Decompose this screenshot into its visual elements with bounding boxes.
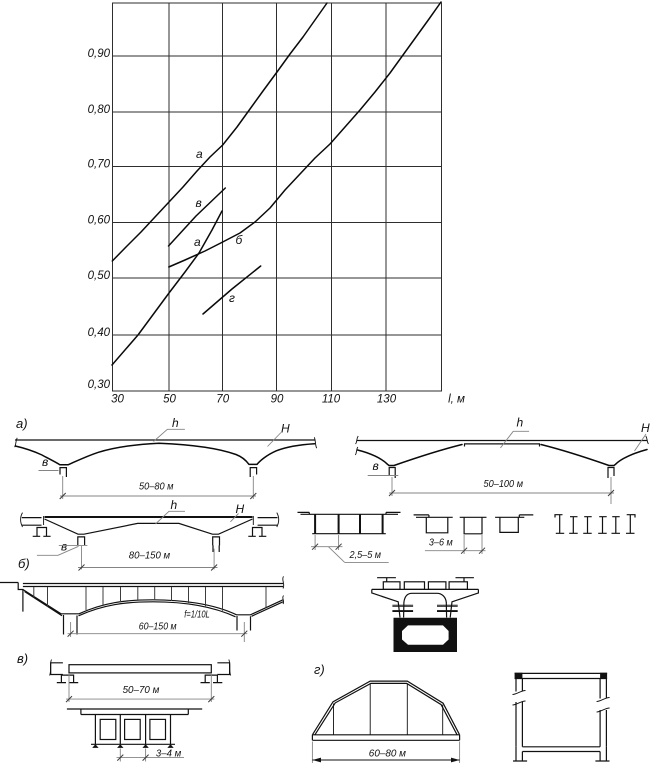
svg-text:90: 90 xyxy=(271,394,284,406)
svg-text:0,80: 0,80 xyxy=(88,104,111,116)
svg-text:110: 110 xyxy=(322,394,341,406)
svg-text:г: г xyxy=(229,291,235,305)
svg-text:50–70 м: 50–70 м xyxy=(123,685,160,696)
svg-text:h: h xyxy=(171,498,178,512)
svg-text:0,90: 0,90 xyxy=(88,48,111,60)
svg-text:30: 30 xyxy=(111,394,124,406)
svg-text:0,50: 0,50 xyxy=(88,270,111,282)
svg-text:3–6 м: 3–6 м xyxy=(429,538,453,549)
svg-text:0,40: 0,40 xyxy=(88,327,111,339)
svg-text:f=1/10L: f=1/10L xyxy=(184,610,210,621)
svg-text:в: в xyxy=(42,455,48,469)
svg-text:l, м: l, м xyxy=(448,394,465,406)
svg-text:60–150 м: 60–150 м xyxy=(139,622,177,633)
svg-text:а: а xyxy=(194,235,201,249)
svg-text:б: б xyxy=(236,233,244,247)
svg-text:в: в xyxy=(196,196,202,210)
svg-text:в): в) xyxy=(17,651,28,666)
svg-text:0,60: 0,60 xyxy=(88,215,111,227)
svg-text:0,30: 0,30 xyxy=(88,379,111,391)
svg-text:Н: Н xyxy=(236,502,245,516)
svg-text:б): б) xyxy=(18,556,30,571)
svg-text:h: h xyxy=(172,416,179,430)
svg-text:в: в xyxy=(373,459,379,473)
svg-text:70: 70 xyxy=(216,394,229,406)
svg-text:50: 50 xyxy=(163,394,176,406)
svg-text:0,70: 0,70 xyxy=(88,159,111,171)
svg-text:130: 130 xyxy=(377,394,397,406)
svg-text:50–80 м: 50–80 м xyxy=(139,482,174,493)
svg-text:г): г) xyxy=(314,662,325,677)
svg-text:Н: Н xyxy=(281,422,290,436)
svg-text:60–80 м: 60–80 м xyxy=(369,749,406,760)
svg-text:50–100 м: 50–100 м xyxy=(484,479,524,490)
svg-text:2,5–5 м: 2,5–5 м xyxy=(349,550,381,561)
svg-text:80–150 м: 80–150 м xyxy=(129,551,170,562)
svg-text:а): а) xyxy=(16,416,28,431)
svg-text:3–4 м: 3–4 м xyxy=(156,749,181,760)
svg-text:а: а xyxy=(196,147,203,161)
svg-text:h: h xyxy=(517,416,524,430)
svg-text:Н: Н xyxy=(641,421,650,435)
